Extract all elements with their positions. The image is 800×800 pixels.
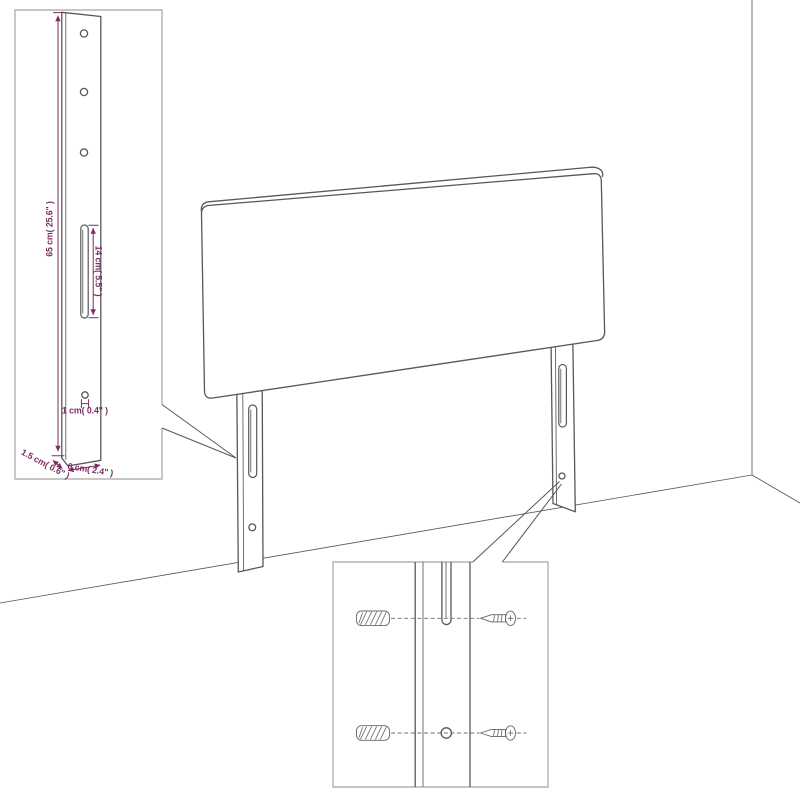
post-height-label: 65 cm( 25.6" ) [45,201,55,257]
product-diagram: 65 cm( 25.6" ) 14 cm( 5.5" ) 1 cm( 0.4" … [0,0,800,800]
slot-length-label: 14 cm( 5.5" ) [94,246,104,297]
hole-diameter-label: 1 cm( 0.4" ) [62,406,108,416]
post-detail-inset: 65 cm( 25.6" ) 14 cm( 5.5" ) 1 cm( 0.4" … [15,10,162,481]
post-slot [81,225,88,318]
floor-line-right [752,475,800,503]
right-leg-slot [559,365,567,428]
diagram-canvas: 65 cm( 25.6" ) 14 cm( 5.5" ) 1 cm( 0.4" … [0,0,800,800]
left-leg-slot [249,405,257,478]
headboard [201,167,604,572]
left-leg [237,382,263,572]
post-callout-wedge [162,405,236,459]
fastener-callout-wedge [473,482,562,563]
wall-plug-icon [357,726,390,741]
headboard-panel [201,174,604,399]
fastener-detail-inset [333,562,548,787]
wall-plug-icon [357,611,390,626]
fastener-inset-border [333,562,548,787]
